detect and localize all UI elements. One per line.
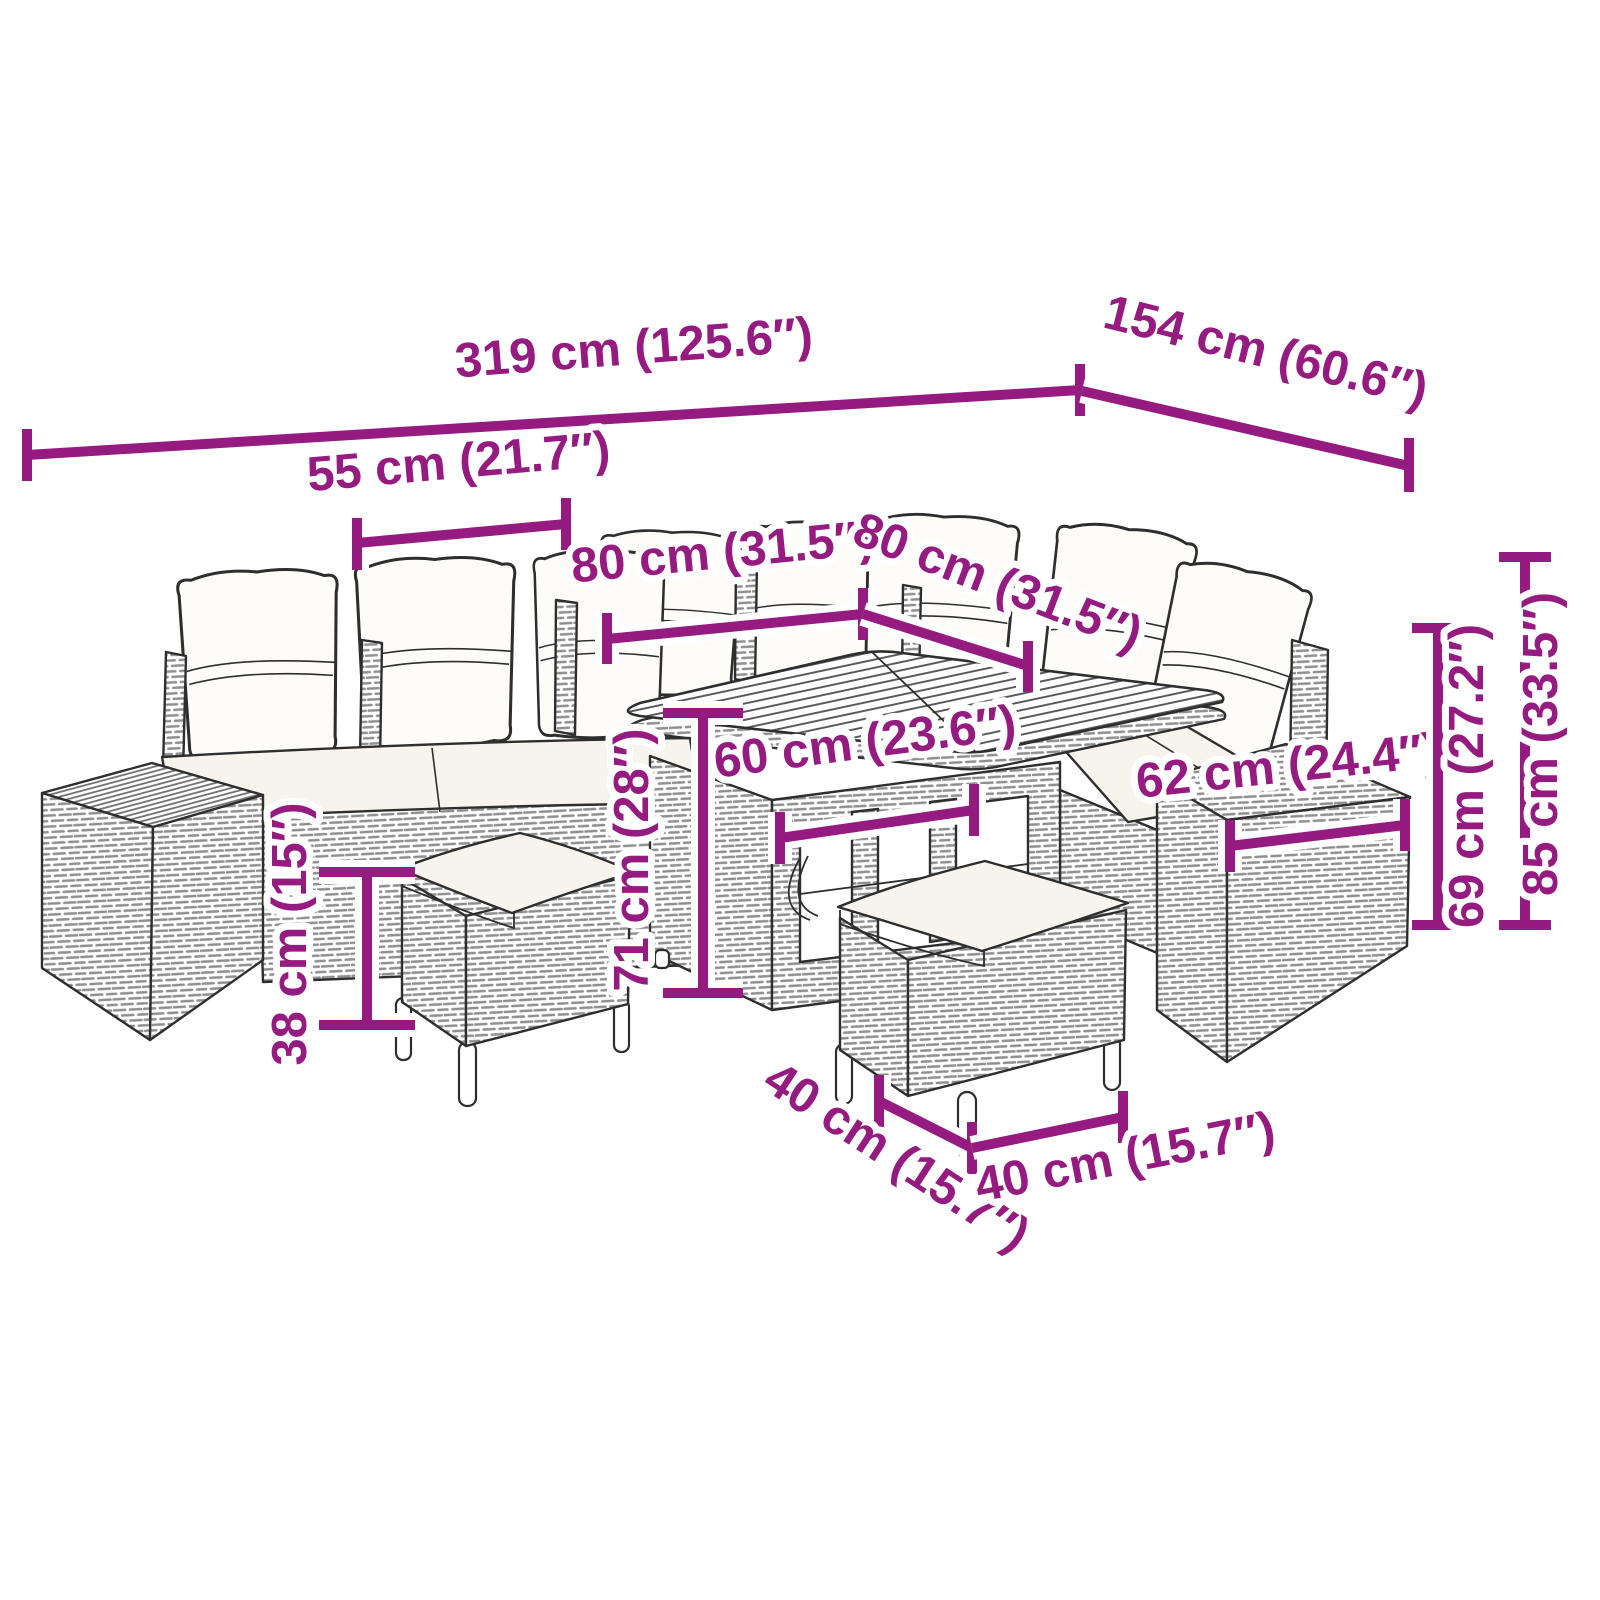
dim-stool-depth: 40 cm (15.7″) <box>971 1091 1280 1213</box>
frame-post <box>555 600 577 735</box>
dim-table-height-label: 71 cm (28″) <box>605 728 659 991</box>
furniture-set <box>42 512 1410 1158</box>
dim-seat-width: 55 cm (21.7″) <box>305 422 613 570</box>
dim-overall-height-label: 85 cm (33.5″) <box>1514 592 1568 896</box>
dim-stool-height-label: 38 cm (15″) <box>263 802 317 1065</box>
stool-left <box>396 833 633 1106</box>
frame-post <box>360 640 382 763</box>
dimension-diagram: 319 cm (125.6″) 154 cm (60.6″) 55 cm (21… <box>0 0 1600 1600</box>
left-back-pillow <box>177 568 343 764</box>
dim-overall-width-label: 319 cm (125.6″) <box>453 308 815 389</box>
dim-backrest-height-label: 69 cm (27.2″) <box>1440 624 1494 928</box>
left-corner-table <box>42 763 263 1040</box>
dim-overall-depth: 154 cm (60.6″) <box>1082 285 1433 492</box>
dim-overall-height: 85 cm (33.5″) <box>1499 557 1568 925</box>
